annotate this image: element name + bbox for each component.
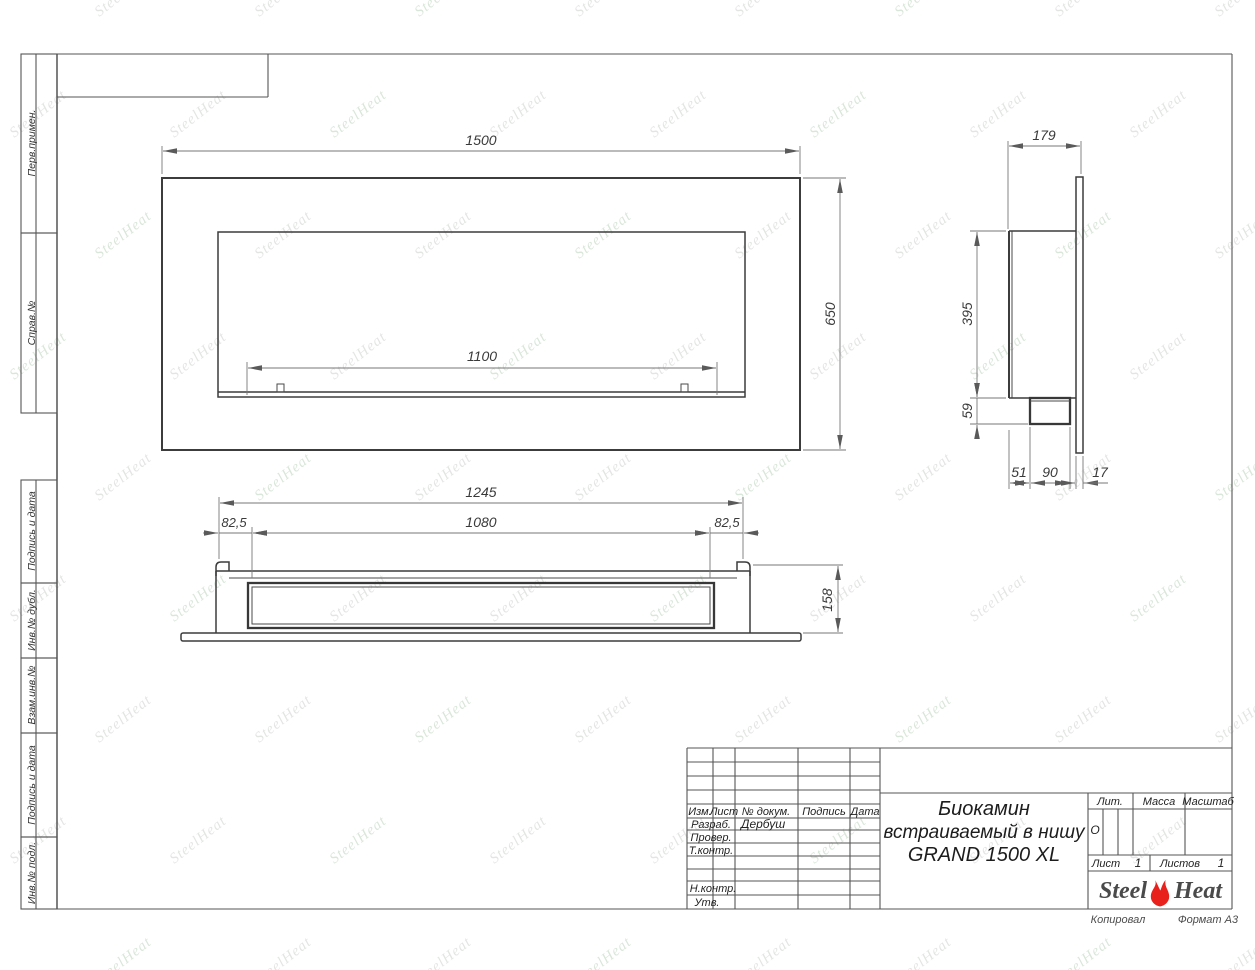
plan-dim-right: 82,5 [714,515,740,530]
brand-logo: Steel Heat [1099,878,1223,907]
plan-clip-left [216,562,229,576]
front-dim-height: 650 [822,302,838,326]
margin-label-perv-primen: Перв.примен. [26,110,38,177]
doc-name-line1: Биокамин [938,798,1030,820]
role-nkontr: Н.контр. [690,883,737,895]
sheets-value: 1 [1218,856,1225,870]
burner-cap-right [681,384,688,392]
lit-value: О [1090,823,1099,837]
front-dim-width: 1500 [465,132,496,148]
document-name: Биокамин встраиваемый в нишу GRAND 1500 … [883,798,1086,866]
sheets-label: Листов [1159,858,1200,870]
top-left-stamp-box [57,54,268,97]
margin-label-podpis-data-1: Подпись и дата [26,491,38,571]
role-prover: Провер. [691,832,732,844]
role-tkontr: Т.контр. [689,845,733,857]
plan-body [181,571,801,641]
side-view: 179 395 59 51 90 [959,127,1109,489]
col-list: Лист [709,806,738,818]
plan-dim-depth: 158 [819,588,835,612]
burner-cap-left [277,384,284,392]
doc-name-line3: GRAND 1500 XL [908,844,1060,866]
sheet-label: Лист [1091,858,1120,870]
side-body [1009,231,1076,398]
side-dim-depth: 179 [1032,127,1056,143]
col-date: Дата [848,806,879,818]
front-view: 1500 650 1100 [162,132,846,450]
footer-format: Формат А3 [1178,914,1239,926]
sheet-footer: Копировал Формат А3 [1091,914,1239,926]
side-dim-height: 395 [959,302,975,326]
role-razrab-value: Дербуш [739,817,785,831]
flame-icon [1151,880,1169,907]
doc-name-line2: встраиваемый в нишу [883,822,1086,843]
side-front-panel [1076,177,1083,453]
side-burner-tray [1030,398,1070,424]
margin-label-vzam-inv: Взам.инв.№ [26,665,38,724]
scale-label: Масштаб [1182,796,1234,808]
side-dim-depth-lines [1008,141,1081,229]
front-window [218,232,745,397]
plan-dim-width: 1245 [465,484,496,500]
col-sign: Подпись [802,806,846,818]
side-dim-offset: 51 [1011,464,1027,480]
side-dim-tray-height-lines [970,384,1028,438]
margin-label-sprav-no: Справ.№ [26,301,38,346]
plan-base-plate [181,633,801,641]
margin-label-inv-dubl: Инв.№ дубл. [26,589,38,651]
role-utv: Утв. [694,897,720,909]
plan-clip-right [737,562,750,576]
front-outer-frame [162,178,800,450]
plan-dim-left: 82,5 [221,515,247,530]
footer-copied: Копировал [1091,914,1146,926]
logo-heat: Heat [1173,878,1223,904]
front-dim-burner-lines [247,362,717,395]
plan-dim-slot: 1080 [465,514,496,530]
col-izm: Изм. [688,806,711,818]
margin-label-inv-podl: Инв.№ подл. [26,842,38,904]
front-dim-burner: 1100 [467,348,497,364]
plan-view: 1245 82,5 1080 82,5 158 [181,484,843,641]
front-dim-width-lines [162,146,800,174]
left-margin-cells: Перв.примен. Справ.№ Подпись и дата Инв.… [21,54,57,909]
title-block: Изм. Лист № докум. Подпись Дата Разраб. … [687,748,1234,909]
mass-label: Масса [1143,796,1176,808]
sheet-value: 1 [1135,856,1142,870]
lit-label: Лит. [1096,796,1123,808]
plan-burner-slot [248,583,714,628]
side-dim-tray-height: 59 [959,403,975,419]
role-razrab: Разраб. [691,819,731,831]
margin-label-podpis-data-2: Подпись и дата [26,745,38,825]
logo-steel: Steel [1099,878,1147,904]
side-dim-height-lines [970,231,1006,398]
side-dim-tray-depth: 90 [1042,464,1058,480]
sheet-frame [21,54,1232,909]
drawing-sheet: Перв.примен. Справ.№ Подпись и дата Инв.… [0,0,1255,970]
side-dim-flange: 17 [1092,464,1109,480]
